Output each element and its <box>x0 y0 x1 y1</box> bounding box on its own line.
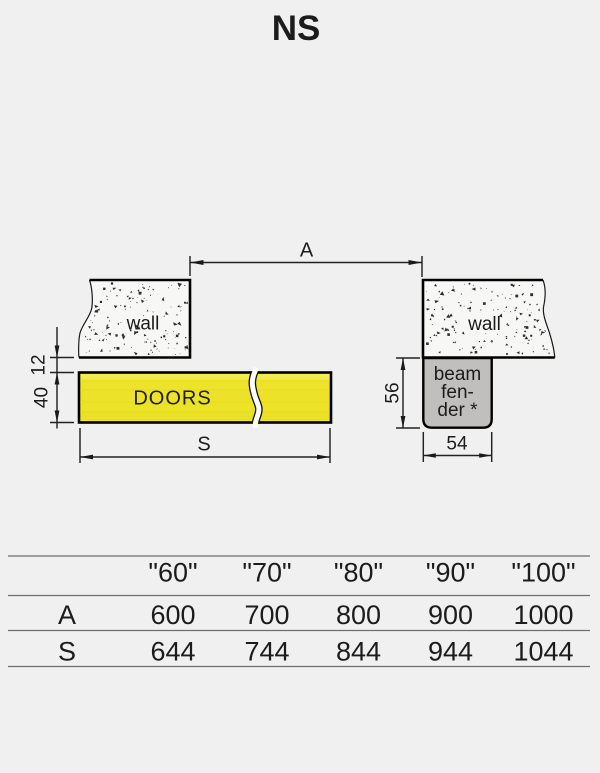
svg-text:"100": "100" <box>511 558 575 588</box>
svg-text:600: 600 <box>150 600 195 630</box>
svg-text:54: 54 <box>446 434 468 455</box>
svg-text:NS: NS <box>272 9 321 48</box>
svg-text:12: 12 <box>29 354 50 375</box>
svg-text:56: 56 <box>383 382 404 403</box>
svg-text:"60": "60" <box>148 558 197 588</box>
svg-text:"70": "70" <box>242 558 291 588</box>
svg-text:"90": "90" <box>426 558 475 588</box>
svg-text:900: 900 <box>428 600 473 630</box>
svg-text:A: A <box>300 240 314 262</box>
svg-text:S: S <box>197 434 210 456</box>
svg-text:944: 944 <box>428 637 473 667</box>
svg-text:S: S <box>58 637 76 667</box>
svg-text:1000: 1000 <box>513 600 573 630</box>
svg-text:800: 800 <box>336 600 381 630</box>
svg-text:40: 40 <box>32 387 53 408</box>
svg-text:644: 644 <box>150 637 195 667</box>
svg-text:744: 744 <box>244 637 289 667</box>
svg-text:DOORS: DOORS <box>133 388 211 410</box>
svg-text:der *: der * <box>437 400 478 421</box>
svg-text:wall: wall <box>126 314 160 335</box>
svg-text:1044: 1044 <box>513 637 573 667</box>
svg-text:wall: wall <box>467 314 501 335</box>
svg-text:"80": "80" <box>334 558 383 588</box>
svg-text:844: 844 <box>336 637 381 667</box>
svg-text:700: 700 <box>244 600 289 630</box>
svg-text:A: A <box>58 600 76 630</box>
